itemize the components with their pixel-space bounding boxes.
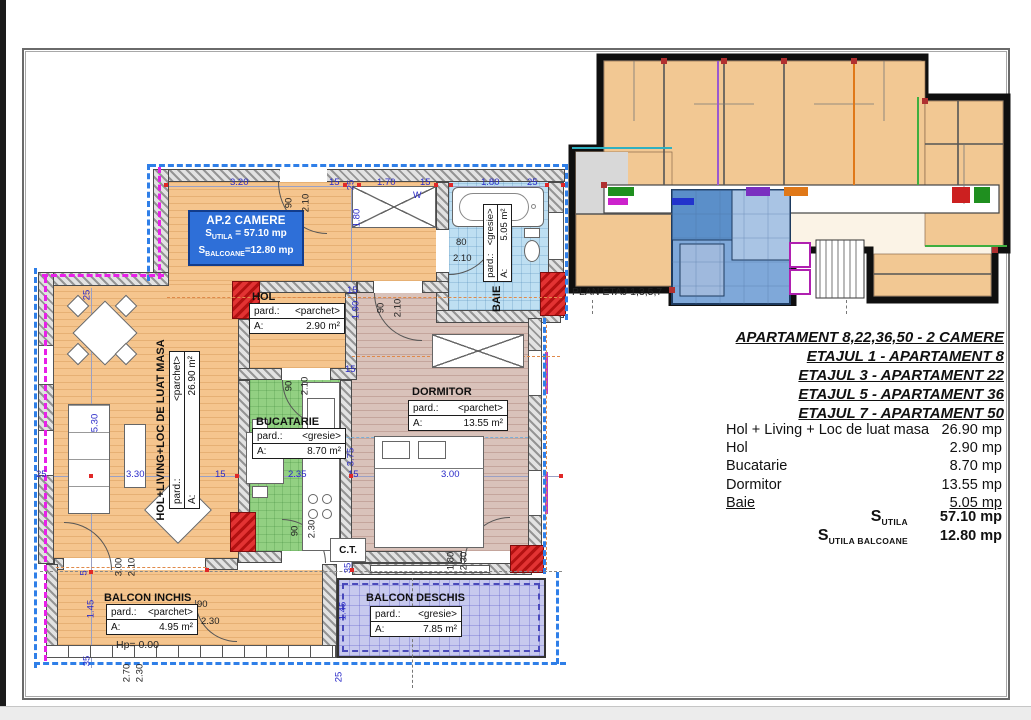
dim-label: 3.20 — [230, 178, 249, 188]
pard-key: pard.: — [375, 609, 401, 620]
dim-label: 3.75 — [346, 448, 356, 467]
wall — [238, 368, 282, 380]
dim-label: 15 — [420, 178, 431, 188]
envelope-blue-dashed — [147, 164, 150, 281]
area-key: A: — [111, 622, 120, 633]
dim-label: 90 — [284, 198, 294, 209]
pard-value: <gresie> — [485, 208, 496, 245]
wall — [422, 281, 449, 293]
pard-value: <parchet> — [148, 607, 193, 618]
dim-label: 1.80 — [481, 178, 500, 188]
pard-value: <gresie> — [418, 609, 457, 620]
area-row-value: 2.90 mp — [950, 439, 1002, 457]
room-title-bucatarie: BUCATARIE — [256, 416, 319, 428]
room-title-hol: HOL — [252, 291, 275, 303]
entry-door-opening — [280, 169, 327, 182]
stove-burner — [322, 509, 332, 519]
dim-label: 2.10 — [301, 194, 311, 213]
pillow — [382, 441, 410, 459]
header-line: ETAJUL 7 - APARTAMENT 50 — [560, 404, 1004, 423]
room-title-dormitor: DORMITOR — [412, 386, 472, 398]
page-left-edge — [0, 0, 6, 720]
heating-dashed-line — [546, 325, 548, 570]
total-value: 12.80 mp — [924, 528, 1002, 544]
pard-value: <parchet> — [295, 306, 340, 317]
hp-level-label: Hp= 0.00 — [116, 640, 159, 650]
dim-node — [449, 183, 453, 187]
envelope-blue-dashed — [556, 572, 559, 664]
dim-label: 25 — [36, 470, 47, 480]
pard-value: <parchet> — [172, 356, 183, 401]
apartment-sbalcoane: SBALCOANE=12.80 mp — [190, 244, 302, 261]
apartment-title: AP.2 CAMERE — [190, 215, 302, 227]
dim-node — [164, 183, 168, 187]
total-row: SUTILA BALCOANE 12.80 mp — [726, 527, 1002, 546]
area-row: Dormitor13.55 mp — [726, 476, 1002, 494]
dim-node — [350, 568, 354, 572]
dim-label: 1.45 — [338, 602, 348, 621]
dim-label: 3.00 — [114, 558, 124, 577]
wall — [357, 281, 374, 293]
wardrobe — [432, 334, 524, 368]
dim-node — [559, 474, 563, 478]
dim-label: 15 — [215, 470, 226, 480]
dim-label: 2.30 — [201, 617, 220, 627]
dim-label: 2.10 — [393, 299, 403, 318]
stove-burner — [308, 494, 318, 504]
baie-label-group: BAIE pard.:<gresie> A:5.05 m² — [474, 212, 520, 312]
room-label-hol: pard.:<parchet> A:2.90 m² — [249, 303, 345, 334]
area-row-label: Hol — [726, 439, 748, 457]
boiler-label: C.T. — [339, 545, 357, 556]
dim-label: 5.30 — [90, 414, 100, 433]
chair — [252, 486, 268, 498]
dim-label: 2.10 — [300, 377, 310, 396]
dim-label: 15 — [347, 286, 358, 296]
pillow — [418, 441, 446, 459]
pard-key: pard.: — [172, 478, 183, 504]
total-symbol: SUTILA — [871, 508, 908, 527]
dim-label: 2.30 — [459, 552, 469, 571]
dim-label: 3.30 — [126, 470, 145, 480]
boiler-closet: C.T. — [330, 538, 366, 562]
dim-node — [349, 474, 353, 478]
envelope-blue-dashed — [34, 662, 566, 665]
area-row-value: 13.55 mp — [942, 476, 1002, 494]
area-key: A: — [187, 495, 198, 504]
dim-label: 3.00 — [441, 470, 460, 480]
dim-label: 90 — [284, 381, 294, 392]
dim-label: 2.10 — [127, 558, 137, 577]
area-row-value: 26.90 mp — [942, 421, 1002, 439]
dim-label: 15 — [345, 365, 356, 375]
dim-node — [357, 183, 361, 187]
envelope-blue-dashed — [34, 268, 37, 668]
room-title-living: HOL+LIVING+LOC DE LUAT MASA — [155, 339, 167, 520]
area-key: A: — [499, 269, 510, 278]
dim-label: W — [413, 190, 422, 200]
header-line: ETAJUL 1 - APARTAMENT 8 — [560, 347, 1004, 366]
dim-label: 25 — [346, 180, 356, 191]
area-row-label: Bucatarie — [726, 457, 787, 475]
toilet-bowl — [524, 240, 540, 262]
area-value: 2.90 m² — [306, 321, 340, 332]
dim-label: 25 — [334, 672, 344, 683]
area-key: A: — [257, 446, 266, 457]
room-label-balcon-inchis: pard.:<parchet> A:4.95 m² — [106, 604, 198, 635]
dim-node — [89, 570, 93, 574]
dim-label: 2.35 — [288, 470, 307, 480]
key-plan-caption: PLAN ETAJ 1,3,5,7 — [572, 286, 662, 298]
area-row-label: Hol + Living + Loc de luat masa — [726, 421, 929, 439]
dim-node — [545, 183, 549, 187]
living-label-group: HOL+LIVING+LOC DE LUAT MASA pard.:<parch… — [155, 330, 211, 530]
dim-label: 2.30 — [135, 664, 145, 683]
pard-key: pard.: — [485, 253, 496, 277]
dim-label: 2.10 — [453, 254, 472, 264]
page-bottom-edge — [0, 706, 1031, 720]
room-label-balcon-deschis: pard.:<gresie> A:7.85 m² — [370, 606, 462, 637]
area-key: A: — [254, 321, 263, 332]
header-line: APARTAMENT 8,22,36,50 - 2 CAMERE — [560, 328, 1004, 347]
column — [540, 272, 566, 316]
dim-node — [434, 183, 438, 187]
balcony-pier — [322, 564, 337, 658]
envelope-magenta-dashed — [42, 274, 164, 277]
area-row: Hol2.90 mp — [726, 439, 1002, 457]
area-value: 7.85 m² — [423, 624, 457, 635]
total-row: SUTILA 57.10 mp — [726, 508, 1002, 527]
dim-node — [561, 183, 565, 187]
area-value: 8.70 m² — [307, 446, 341, 457]
dim-label: 90 — [290, 526, 300, 537]
dim-node — [235, 474, 239, 478]
area-table: Hol + Living + Loc de luat masa26.90 mp … — [726, 421, 1002, 512]
area-value: 5.05 m² — [499, 208, 510, 240]
balcony-parapet — [46, 564, 58, 658]
stove-burner — [308, 509, 318, 519]
dim-label: 80 — [456, 238, 467, 248]
wall — [153, 169, 565, 182]
floor-plan-sheet: C.T. AP.2 CAMERE SUTILA = 57.10 mp SBALC… — [0, 0, 1031, 720]
dim-node — [343, 183, 347, 187]
dim-label: 35 — [82, 656, 92, 667]
header-line: ETAJUL 5 - APARTAMENT 36 — [560, 385, 1004, 404]
dim-label: 1.80 — [446, 552, 456, 571]
dim-label: 90 — [197, 600, 208, 610]
column — [510, 545, 544, 573]
area-value: 4.95 m² — [159, 622, 193, 633]
wall — [205, 558, 238, 570]
area-value: 13.55 m² — [464, 418, 503, 429]
stove-burner — [322, 494, 332, 504]
area-row: Hol + Living + Loc de luat masa26.90 mp — [726, 421, 1002, 439]
apartment-headers: APARTAMENT 8,22,36,50 - 2 CAMERE ETAJUL … — [560, 328, 1004, 423]
total-value: 57.10 mp — [924, 509, 1002, 525]
dim-label: 15 — [329, 178, 340, 188]
area-row-value: 8.70 mp — [950, 457, 1002, 475]
pard-value: <parchet> — [458, 403, 503, 414]
room-title-baie: BAIE — [491, 286, 503, 312]
window — [548, 212, 564, 260]
envelope-magenta-dashed — [158, 167, 161, 279]
apartment-info-box: AP.2 CAMERE SUTILA = 57.10 mp SBALCOANE=… — [188, 210, 304, 266]
room-label-bucatarie: pard.:<gresie> A:8.70 m² — [252, 428, 346, 459]
dim-label: 2.30 — [307, 520, 317, 539]
dim-label: 1.70 — [377, 178, 396, 188]
dim-label: 25 — [527, 178, 538, 188]
room-title-balcon-deschis: BALCON DESCHIS — [366, 592, 465, 604]
envelope-blue-dashed — [150, 164, 568, 167]
apartment-sutila: SUTILA = 57.10 mp — [190, 227, 302, 244]
pard-key: pard.: — [254, 306, 280, 317]
dim-label: 1.90 — [351, 301, 361, 320]
area-totals: SUTILA 57.10 mp SUTILA BALCOANE 12.80 mp — [726, 508, 1002, 546]
axis-line — [846, 300, 847, 314]
dim-label: 1.45 — [86, 600, 96, 619]
dim-node — [89, 474, 93, 478]
dim-node — [205, 568, 209, 572]
area-value: 26.90 m² — [187, 356, 198, 395]
bathtub-drain — [531, 204, 536, 209]
area-row: Bucatarie8.70 mp — [726, 457, 1002, 475]
total-symbol: SUTILA BALCOANE — [818, 527, 908, 546]
axis-line — [592, 300, 593, 314]
dim-label: 1.80 — [352, 209, 362, 228]
pard-key: pard.: — [257, 431, 283, 442]
wall — [436, 182, 449, 230]
closet — [352, 186, 436, 228]
dim-label: 2.70 — [122, 664, 132, 683]
toilet-tank — [524, 228, 540, 238]
room-title-balcon-inchis: BALCON INCHIS — [104, 592, 191, 604]
dim-label: 90 — [376, 303, 386, 314]
pard-key: pard.: — [111, 607, 137, 618]
room-label-dormitor: pard.:<parchet> A:13.55 m² — [408, 400, 508, 431]
window — [528, 470, 542, 516]
bed-blanket-line — [374, 468, 484, 469]
header-line: ETAJUL 3 - APARTAMENT 22 — [560, 366, 1004, 385]
pard-value: <gresie> — [302, 431, 341, 442]
pard-key: pard.: — [413, 403, 439, 414]
dim-label: 25 — [82, 290, 92, 301]
building-key-plan — [568, 44, 1016, 306]
area-key: A: — [375, 624, 384, 635]
wall — [238, 551, 282, 563]
column — [230, 512, 256, 552]
area-row-label: Dormitor — [726, 476, 782, 494]
envelope-blue-dashed — [565, 164, 568, 320]
area-key: A: — [413, 418, 422, 429]
highlighted-apartment — [672, 190, 790, 304]
